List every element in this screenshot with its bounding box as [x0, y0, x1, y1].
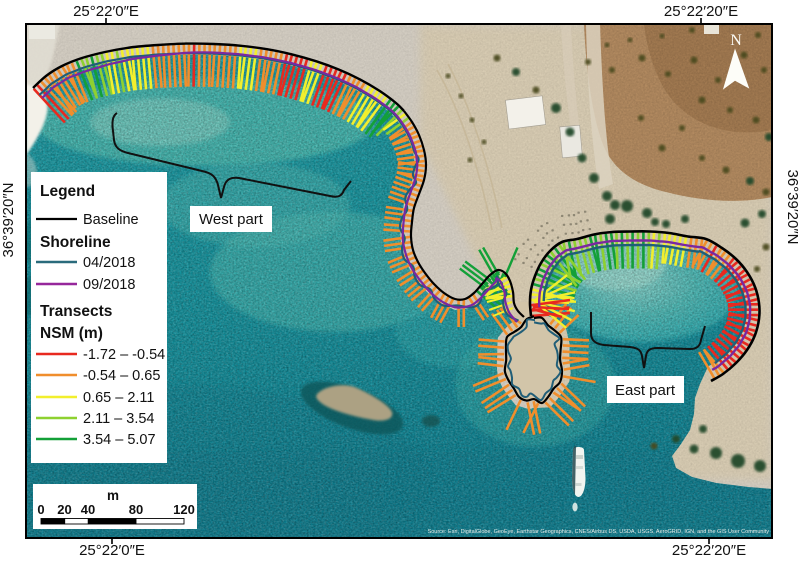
svg-text:04/2018: 04/2018 — [83, 255, 135, 271]
svg-text:m: m — [107, 488, 119, 503]
svg-text:East part: East part — [615, 382, 676, 399]
svg-text:25°22′20″E: 25°22′20″E — [664, 3, 738, 20]
svg-text:09/2018: 09/2018 — [83, 277, 135, 293]
svg-text:120: 120 — [173, 502, 195, 517]
svg-text:3.54 – 5.07: 3.54 – 5.07 — [83, 432, 156, 448]
svg-text:25°22′20″E: 25°22′20″E — [672, 542, 746, 559]
svg-text:25°22′0″E: 25°22′0″E — [73, 3, 139, 20]
svg-text:40: 40 — [81, 502, 95, 517]
svg-text:80: 80 — [129, 502, 143, 517]
svg-text:-0.54 – 0.65: -0.54 – 0.65 — [83, 368, 160, 384]
svg-text:Source: Esri, DigitalGlobe, Ge: Source: Esri, DigitalGlobe, GeoEye, Eart… — [428, 529, 770, 535]
svg-text:Shoreline: Shoreline — [40, 234, 111, 251]
svg-text:20: 20 — [57, 502, 71, 517]
svg-text:0: 0 — [37, 502, 44, 517]
svg-text:Baseline: Baseline — [83, 212, 139, 228]
svg-text:West part: West part — [199, 211, 264, 228]
svg-text:0.65 – 2.11: 0.65 – 2.11 — [83, 390, 155, 406]
svg-text:36°39′20″N: 36°39′20″N — [0, 182, 17, 257]
svg-text:N: N — [730, 32, 742, 49]
svg-text:Legend: Legend — [40, 183, 95, 200]
svg-text:25°22′0″E: 25°22′0″E — [79, 542, 145, 559]
svg-text:NSM (m): NSM (m) — [40, 325, 103, 342]
svg-text:Transects: Transects — [40, 303, 112, 320]
svg-text:2.11 – 3.54: 2.11 – 3.54 — [83, 411, 155, 427]
svg-text:36°39′20″N: 36°39′20″N — [784, 169, 800, 244]
svg-text:-1.72 – -0.54: -1.72 – -0.54 — [83, 347, 165, 363]
